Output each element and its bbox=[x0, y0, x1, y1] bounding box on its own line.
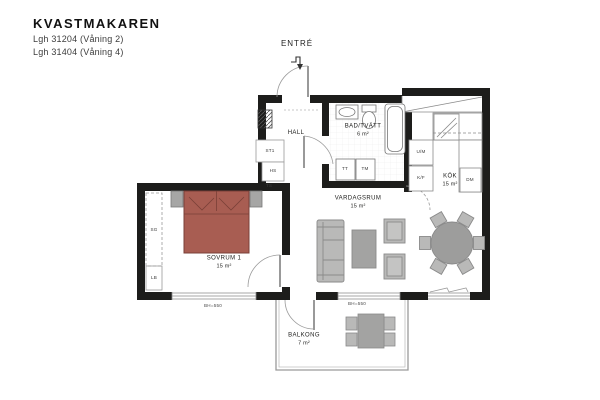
hall-fixtures bbox=[256, 110, 320, 181]
wall bbox=[282, 287, 290, 300]
window-sill-label-bedroom: BH=550 bbox=[204, 303, 222, 309]
wall bbox=[408, 292, 428, 300]
dining-furniture bbox=[420, 212, 485, 275]
armchair bbox=[384, 254, 405, 279]
wall bbox=[322, 181, 412, 188]
armchair bbox=[384, 219, 405, 243]
wall bbox=[470, 292, 490, 300]
apartment-id-1: Lgh 31204 (Våning 2) bbox=[33, 34, 161, 44]
sofa bbox=[317, 220, 344, 282]
coffee-table bbox=[352, 230, 376, 268]
fixture-label-tumble-dryer: TT bbox=[342, 166, 348, 172]
room-label-kitchen: KÖK 15 m² bbox=[442, 174, 457, 189]
balcony-chair bbox=[346, 317, 357, 330]
room-label-bathroom: BAD/TVÄTT 6 m² bbox=[345, 124, 382, 139]
nightstand bbox=[171, 191, 183, 207]
dining-chair bbox=[420, 237, 431, 250]
fixture-label-washing-machine: TM bbox=[361, 166, 368, 172]
fixture-label-fridge-freezer: K/F bbox=[417, 175, 425, 181]
balcony-door bbox=[285, 300, 314, 330]
dining-window bbox=[428, 288, 470, 300]
dining-table bbox=[431, 222, 473, 264]
entrance-label: ENTRÉ bbox=[281, 39, 313, 49]
shaft bbox=[258, 110, 272, 128]
fixture-label-linen-cabinet: LB bbox=[151, 275, 157, 281]
wall bbox=[400, 292, 410, 300]
bathroom-door bbox=[304, 136, 333, 168]
fixture-label-tall-cabinet: HS bbox=[270, 168, 277, 174]
living-room-furniture bbox=[317, 219, 405, 282]
room-label-balcony: BALKONG 7 m² bbox=[288, 333, 320, 348]
balcony-chair bbox=[384, 317, 395, 330]
fixture-label-cleaning-cabinet: ST1 bbox=[265, 148, 274, 154]
stove bbox=[434, 114, 459, 140]
balcony-table bbox=[358, 314, 384, 348]
balcony-furniture bbox=[346, 314, 395, 348]
wall bbox=[322, 96, 329, 136]
apartment-id-2: Lgh 31404 (Våning 4) bbox=[33, 47, 161, 57]
plan-title: KVASTMAKAREN bbox=[33, 16, 161, 31]
room-label-bedroom: SOVRUM 1 15 m² bbox=[207, 256, 242, 271]
wall bbox=[137, 292, 172, 300]
wall bbox=[258, 95, 282, 103]
bedroom-door bbox=[248, 255, 280, 287]
entrance-door bbox=[277, 66, 308, 97]
fixture-label-oven-microwave: U/M bbox=[416, 149, 425, 155]
fixture-label-dishwasher: DM bbox=[466, 177, 474, 183]
room-label-hall: HALL bbox=[288, 130, 305, 138]
sink bbox=[336, 105, 358, 119]
dining-chair bbox=[474, 237, 485, 250]
bathtub bbox=[385, 104, 405, 154]
window-sill-label-balcony: BH=550 bbox=[348, 301, 366, 307]
wall bbox=[137, 183, 145, 300]
balcony-window bbox=[338, 292, 400, 300]
balcony-chair bbox=[346, 333, 357, 346]
title-block: KVASTMAKAREN Lgh 31204 (Våning 2) Lgh 31… bbox=[33, 16, 161, 57]
floor-plan: KVASTMAKAREN Lgh 31204 (Våning 2) Lgh 31… bbox=[0, 0, 600, 400]
wall bbox=[316, 292, 338, 300]
nightstand bbox=[250, 191, 262, 207]
wall bbox=[282, 183, 290, 255]
kitchen-window bbox=[402, 96, 482, 112]
wall bbox=[482, 88, 490, 300]
room-label-living-room: VARDAGSRUM 15 m² bbox=[335, 196, 382, 211]
bedroom-furniture bbox=[146, 191, 262, 290]
balcony-chair bbox=[384, 333, 395, 346]
double-bed bbox=[184, 191, 249, 253]
fixture-label-sliding-wardrobe: SG bbox=[150, 227, 157, 233]
fixture-label-drying-cabinet: TS bbox=[266, 183, 272, 189]
bedroom-window bbox=[172, 292, 256, 300]
wall bbox=[402, 88, 490, 96]
